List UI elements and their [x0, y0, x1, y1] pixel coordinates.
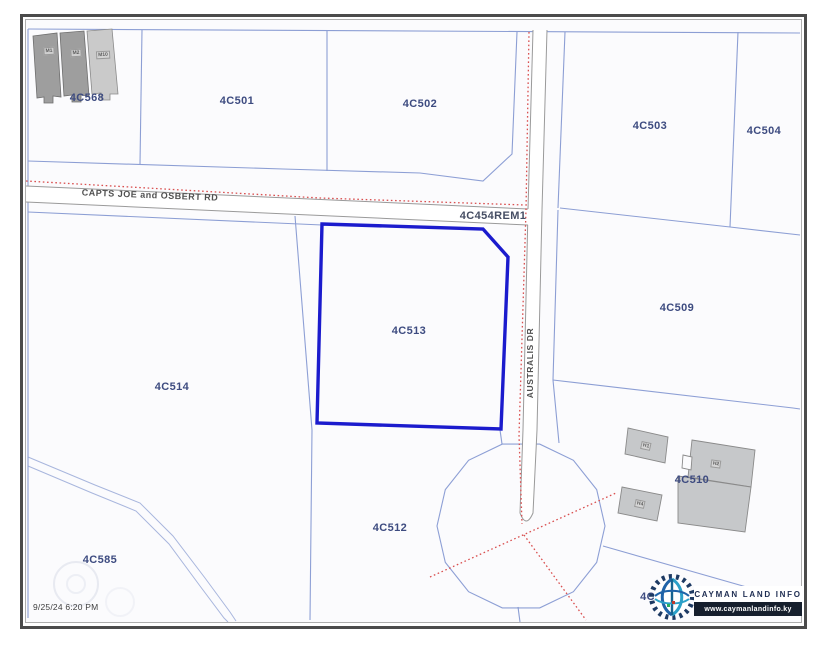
map-background — [25, 19, 802, 623]
globe-icon — [646, 572, 698, 622]
logo-url: www.caymanlandinfo.ky — [694, 602, 802, 616]
logo-title: CAYMAN LAND INFO — [694, 586, 802, 602]
logo-text-bars: CAYMAN LAND INFO www.caymanlandinfo.ky — [694, 586, 802, 616]
buildings-4c568 — [33, 29, 118, 103]
cadastral-map — [0, 0, 829, 650]
map-viewport: 4C5684C5014C5024C5034C5044C454REM14C5094… — [0, 0, 829, 650]
cayman-land-info-logo: CAYMAN LAND INFO www.caymanlandinfo.ky — [646, 574, 804, 621]
timestamp: 9/25/24 6:20 PM — [33, 602, 98, 612]
